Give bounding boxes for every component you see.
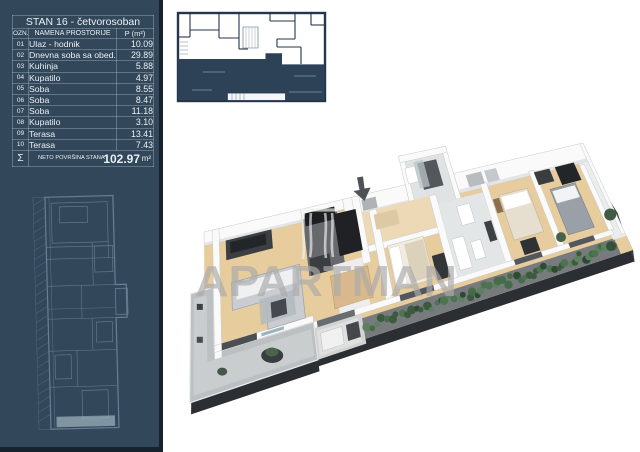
svg-text:APARTMAN: APARTMAN (195, 257, 457, 306)
